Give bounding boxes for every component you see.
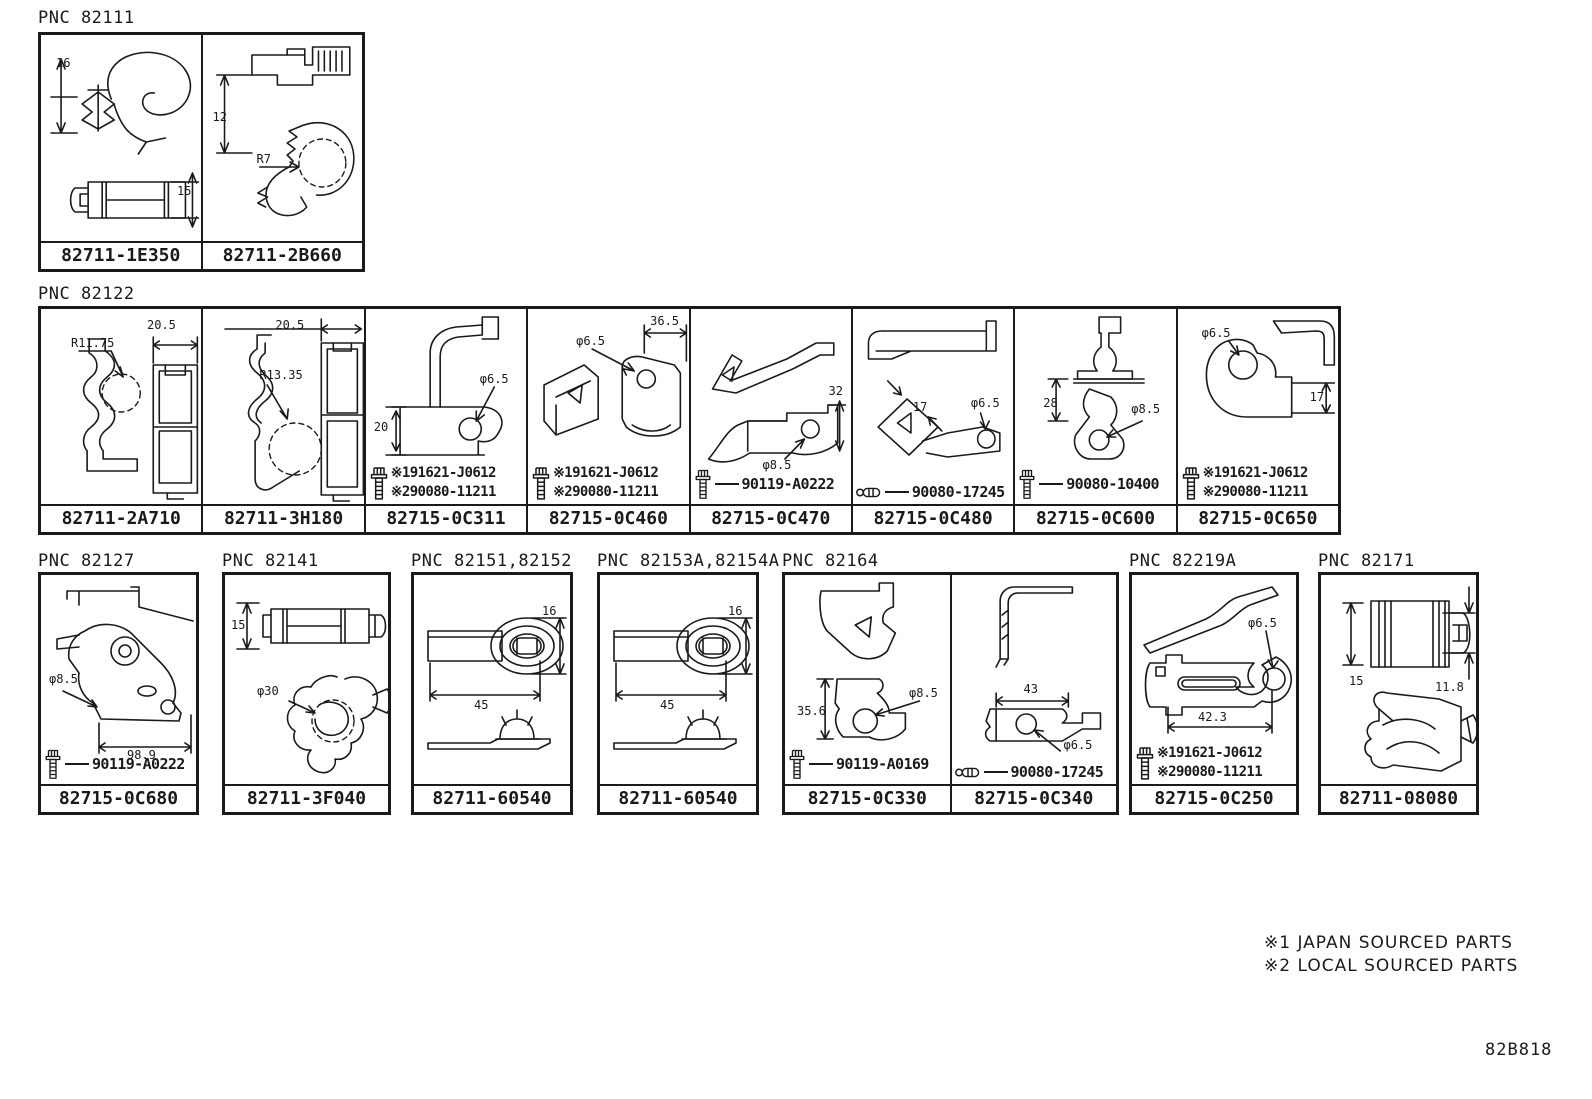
dimension-label: φ8.5 (1131, 403, 1160, 416)
dimension-label: 16 (542, 605, 556, 618)
leader-line (984, 771, 1008, 773)
pnc-group-box: 35.6 φ8.5 90119-A0169 82715-0C330 (782, 572, 1119, 815)
dimension-label: 17 (913, 401, 927, 414)
fastener-note: 90119-A0169 (788, 747, 949, 781)
dimension-label: 15 (1349, 675, 1363, 688)
part-cell: R11.75 20.5 82711-2A710 (41, 309, 201, 532)
part-number: 82711-60540 (600, 784, 756, 812)
pnc-label: PNC 82219A (1129, 551, 1236, 571)
fastener-part-number: ※290080-11211 (391, 483, 496, 502)
dimension-label: 35.6 (797, 705, 826, 718)
dimension-label: 43 (1024, 683, 1038, 696)
clamp-drawing (41, 309, 201, 504)
part-cell: 15 11.8 82711-08080 (1321, 575, 1476, 812)
fastener-note: 90119-A0222 (44, 747, 195, 781)
fastener-part-number: 90119-A0222 (742, 475, 835, 493)
part-number: 82715-0C480 (853, 504, 1013, 532)
clamp-drawing (203, 35, 363, 241)
leader-line (809, 763, 833, 765)
part-cell: φ6.5 42.3 ※191621-J0612 ※290080-11211 82… (1132, 575, 1296, 812)
dimension-label: 15 (177, 185, 191, 198)
pnc-label: PNC 82164 (782, 551, 879, 571)
fastener-part-number: 90080-17245 (1011, 763, 1104, 781)
pnc-group-box: 15 11.8 82711-08080 (1318, 572, 1479, 815)
drawing-code: 82B818 (1485, 1040, 1552, 1060)
pnc-label: PNC 82153A,82154A (597, 551, 780, 571)
dimension-label: 11.8 (1435, 681, 1464, 694)
pnc-label: PNC 82111 (38, 8, 135, 28)
part-number: 82711-3H180 (203, 504, 363, 532)
part-drawing: 16 45 (414, 575, 570, 784)
dimension-label: 32 (829, 385, 843, 398)
dimension-label: φ8.5 (49, 673, 78, 686)
pnc-group-box: 15 φ30 82711-3F040 (222, 572, 391, 815)
fastener-note: ※191621-J0612 ※290080-11211 (531, 463, 687, 503)
dimension-label: R7 (257, 153, 271, 166)
bolt-icon (531, 463, 551, 503)
part-number: 82715-0C680 (41, 784, 196, 812)
fastener-part-number: ※191621-J0612 (1157, 744, 1262, 763)
part-cell: 12 R7 82711-2B660 (201, 35, 363, 269)
dimension-label: 36.5 (650, 315, 679, 328)
part-number: 82715-0C330 (785, 784, 950, 812)
pnc-label: PNC 82122 (38, 284, 135, 304)
fastener-note: 90080-17245 (856, 483, 1012, 501)
part-number: 82711-60540 (414, 784, 570, 812)
leader-line (715, 483, 739, 485)
fastener-note: ※191621-J0612 ※290080-11211 (1135, 743, 1295, 783)
part-number: 82711-2A710 (41, 504, 201, 532)
pnc-group-box: 16 45 82711-60540 (597, 572, 759, 815)
dimension-label: φ6.5 (480, 373, 509, 386)
part-drawing: φ6.5 42.3 ※191621-J0612 ※290080-11211 (1132, 575, 1296, 784)
leader-line (1039, 483, 1063, 485)
part-cell: 16 45 82711-60540 (414, 575, 570, 812)
pnc-group-box: R11.75 20.5 82711-2A710 20.5 R13.35 8271… (38, 306, 1341, 535)
leader-line (885, 491, 909, 493)
dimension-label: 45 (660, 699, 674, 712)
dimension-label: φ30 (257, 685, 279, 698)
pnc-label: PNC 82141 (222, 551, 319, 571)
part-drawing: 16 45 (600, 575, 756, 784)
dimension-label: 16 (728, 605, 742, 618)
part-cell: φ8.5 98.9 90119-A0222 82715-0C680 (41, 575, 196, 812)
part-cell: 15 φ30 82711-3F040 (225, 575, 388, 812)
pnc-label: PNC 82171 (1318, 551, 1415, 571)
part-drawing: φ8.5 98.9 90119-A0222 (41, 575, 196, 784)
dimension-label: φ6.5 (1248, 617, 1277, 630)
clamp-drawing (203, 309, 363, 504)
part-drawing: 28 φ8.5 90080-10400 (1015, 309, 1175, 504)
part-number: 82715-0C340 (952, 784, 1117, 812)
part-number: 82711-2B660 (203, 241, 363, 269)
part-cell: 16 15 82711-1E350 (41, 35, 201, 269)
dimension-label: φ6.5 (1064, 739, 1093, 752)
part-number: 82715-0C600 (1015, 504, 1175, 532)
pnc-group-box: 16 15 82711-1E350 12 R7 82711-2B660 (38, 32, 365, 272)
clamp-drawing (952, 575, 1117, 784)
dimension-label: 45 (474, 699, 488, 712)
dimension-label: 16 (56, 57, 70, 70)
fastener-part-number: 90080-10400 (1066, 475, 1159, 493)
fastener-part-number: ※191621-J0612 (553, 464, 658, 483)
part-cell: 16 45 82711-60540 (600, 575, 756, 812)
dimension-label: 28 (1043, 397, 1057, 410)
part-number: 82715-0C470 (691, 504, 851, 532)
sourcing-note-japan: ※1 JAPAN SOURCED PARTS (1264, 933, 1513, 953)
pnc-label: PNC 82151,82152 (411, 551, 572, 571)
pnc-label: PNC 82127 (38, 551, 135, 571)
fastener-note: 90119-A0222 (694, 467, 850, 501)
sourcing-note-local: ※2 LOCAL SOURCED PARTS (1264, 956, 1518, 976)
part-number: 82715-0C311 (366, 504, 526, 532)
part-number: 82715-0C650 (1178, 504, 1338, 532)
dimension-label: φ6.5 (1202, 327, 1231, 340)
dimension-label: 12 (213, 111, 227, 124)
dimension-label: φ8.5 (909, 687, 938, 700)
part-drawing: φ6.5 17 ※191621-J0612 ※290080-11211 (1178, 309, 1338, 504)
bolt-icon (1181, 463, 1201, 503)
dimension-label: 42.3 (1198, 711, 1227, 724)
pnc-group-box: φ8.5 98.9 90119-A0222 82715-0C680 (38, 572, 199, 815)
part-cell: φ6.5 20 ※191621-J0612 ※290080-11211 8271… (364, 309, 526, 532)
part-drawing: R11.75 20.5 (41, 309, 201, 504)
part-cell: 17 φ6.5 90080-17245 82715-0C480 (851, 309, 1013, 532)
part-drawing: 15 φ30 (225, 575, 388, 784)
bolt-icon (1018, 467, 1036, 501)
part-cell: 35.6 φ8.5 90119-A0169 82715-0C330 (785, 575, 950, 812)
part-cell: φ6.5 17 ※191621-J0612 ※290080-11211 8271… (1176, 309, 1338, 532)
fastener-part-number: ※290080-11211 (1203, 483, 1308, 502)
part-number: 82715-0C250 (1132, 784, 1296, 812)
fastener-part-number: ※290080-11211 (1157, 763, 1262, 782)
dimension-label: φ6.5 (971, 397, 1000, 410)
fastener-note: 90080-17245 (955, 763, 1116, 781)
dimension-label: 17 (1310, 391, 1324, 404)
part-number: 82711-3F040 (225, 784, 388, 812)
dimension-label: R11.75 (71, 337, 114, 350)
bolt-icon (44, 747, 62, 781)
part-number: 82715-0C460 (528, 504, 688, 532)
part-drawing: 43 φ6.5 90080-17245 (952, 575, 1117, 784)
parts-catalog-page: { "footer": { "notes": ["※1 JAPAN SOURCE… (0, 0, 1592, 1099)
fastener-part-number: ※191621-J0612 (391, 464, 496, 483)
pnc-group-box: φ6.5 42.3 ※191621-J0612 ※290080-11211 82… (1129, 572, 1299, 815)
fastener-note: ※191621-J0612 ※290080-11211 (1181, 463, 1337, 503)
part-cell: 43 φ6.5 90080-17245 82715-0C340 (950, 575, 1117, 812)
part-drawing: φ6.5 36.5 ※191621-J0612 ※290080-11211 (528, 309, 688, 504)
part-drawing: 20.5 R13.35 (203, 309, 363, 504)
dimension-label: 20.5 (275, 319, 304, 332)
part-drawing: 32 φ8.5 90119-A0222 (691, 309, 851, 504)
part-cell: 32 φ8.5 90119-A0222 82715-0C470 (689, 309, 851, 532)
part-number: 82711-08080 (1321, 784, 1476, 812)
bolt-icon (694, 467, 712, 501)
part-drawing: 16 15 (41, 35, 201, 241)
part-cell: 20.5 R13.35 82711-3H180 (201, 309, 363, 532)
fastener-part-number: ※191621-J0612 (1203, 464, 1308, 483)
part-drawing: 15 11.8 (1321, 575, 1476, 784)
clamp-drawing (225, 575, 388, 784)
part-cell: 28 φ8.5 90080-10400 82715-0C600 (1013, 309, 1175, 532)
fastener-part-number: 90119-A0169 (836, 755, 929, 773)
fastener-note: 90080-10400 (1018, 467, 1174, 501)
dimension-label: φ6.5 (576, 335, 605, 348)
pin-icon (856, 486, 882, 499)
part-drawing: φ6.5 20 ※191621-J0612 ※290080-11211 (366, 309, 526, 504)
pin-icon (955, 766, 981, 779)
dimension-label: 15 (231, 619, 245, 632)
part-drawing: 12 R7 (203, 35, 363, 241)
part-cell: φ6.5 36.5 ※191621-J0612 ※290080-11211 82… (526, 309, 688, 532)
dimension-label: 20.5 (147, 319, 176, 332)
fastener-part-number: 90080-17245 (912, 483, 1005, 501)
fastener-part-number: 90119-A0222 (92, 755, 185, 773)
bolt-icon (1135, 743, 1155, 783)
dimension-label: R13.35 (259, 369, 302, 382)
part-drawing: 17 φ6.5 90080-17245 (853, 309, 1013, 504)
part-number: 82711-1E350 (41, 241, 201, 269)
leader-line (65, 763, 89, 765)
bolt-icon (369, 463, 389, 503)
pnc-group-box: 16 45 82711-60540 (411, 572, 573, 815)
fastener-part-number: ※290080-11211 (553, 483, 658, 502)
bolt-icon (788, 747, 806, 781)
part-drawing: 35.6 φ8.5 90119-A0169 (785, 575, 950, 784)
dimension-label: 20 (374, 421, 388, 434)
fastener-note: ※191621-J0612 ※290080-11211 (369, 463, 525, 503)
